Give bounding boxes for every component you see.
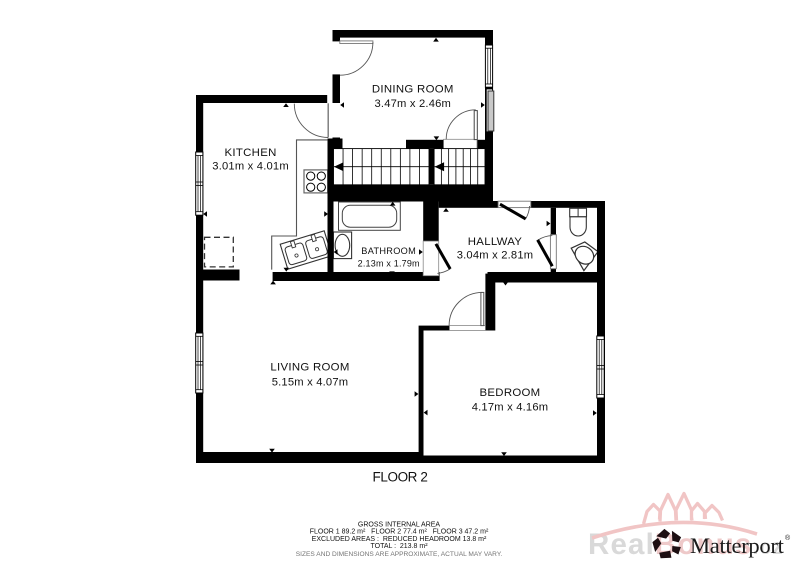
- svg-text:FLOOR 2: FLOOR 2: [373, 470, 428, 485]
- svg-text:3.04m x 2.81m: 3.04m x 2.81m: [457, 249, 534, 261]
- svg-text:LIVING ROOM: LIVING ROOM: [270, 361, 349, 373]
- svg-text:EXCLUDED AREAS : REDUCED HEAD: EXCLUDED AREAS : REDUCED HEADROOM 13.8 m…: [312, 536, 487, 543]
- svg-text:DINING ROOM: DINING ROOM: [372, 83, 454, 95]
- svg-text:TOTAL : 213.8 m²: TOTAL : 213.8 m²: [370, 543, 428, 550]
- svg-text:Matterport: Matterport: [690, 533, 785, 558]
- svg-text:FLOOR 1 89.2 m² FLOOR 2 77.4: FLOOR 1 89.2 m² FLOOR 2 77.4 m² FLOOR 3 …: [310, 529, 489, 536]
- svg-text:BEDROOM: BEDROOM: [480, 387, 541, 399]
- svg-text:5.15m x 4.07m: 5.15m x 4.07m: [272, 376, 349, 388]
- svg-text:3.01m x 4.01m: 3.01m x 4.01m: [212, 160, 289, 172]
- svg-text:3.47m x 2.46m: 3.47m x 2.46m: [374, 98, 451, 110]
- svg-text:GROSS INTERNAL AREA: GROSS INTERNAL AREA: [358, 522, 441, 529]
- svg-text:BATHROOM: BATHROOM: [361, 246, 416, 256]
- svg-text:SIZES AND DIMENSIONS ARE APPRO: SIZES AND DIMENSIONS ARE APPROXIMATE, AC…: [296, 551, 503, 558]
- svg-text:HALLWAY: HALLWAY: [468, 236, 523, 248]
- svg-text:®: ®: [785, 534, 791, 542]
- svg-text:2.13m x 1.79m: 2.13m x 1.79m: [358, 259, 420, 269]
- svg-text:4.17m x 4.16m: 4.17m x 4.16m: [472, 401, 549, 413]
- svg-text:KITCHEN: KITCHEN: [225, 147, 277, 159]
